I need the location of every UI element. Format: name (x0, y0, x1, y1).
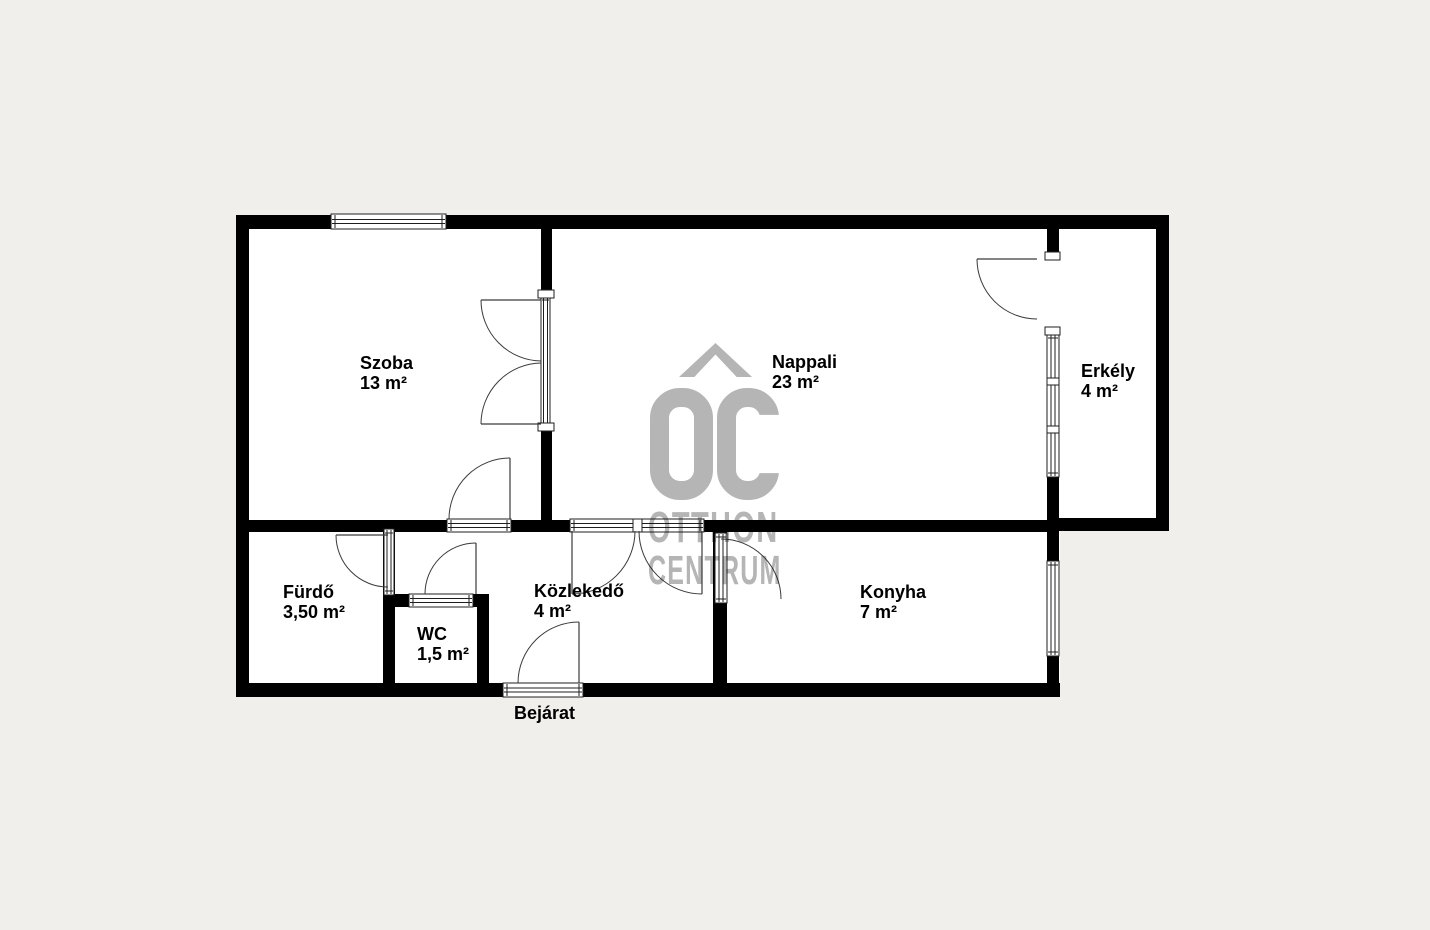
room-name: Fürdő (283, 582, 345, 602)
entrance-threshold (503, 683, 583, 697)
room-name: Konyha (860, 582, 926, 602)
room-label-erkely: Erkély 4 m² (1081, 361, 1135, 401)
door-threshold (447, 519, 511, 532)
floor-area (236, 215, 1060, 697)
glazed-door (384, 529, 394, 595)
room-name: Erkély (1081, 361, 1135, 381)
wall-cap (633, 519, 642, 532)
glazed-door (715, 533, 727, 603)
room-name: Szoba (360, 353, 413, 373)
room-label-furdo: Fürdő 3,50 m² (283, 582, 345, 622)
door-threshold (409, 594, 473, 607)
room-area: 23 m² (772, 372, 837, 392)
wall-cap (1047, 378, 1059, 385)
floor-group (236, 215, 1157, 697)
room-area: 3,50 m² (283, 602, 345, 622)
room-label-wc: WC 1,5 m² (417, 624, 469, 664)
window (331, 214, 446, 229)
room-area: 1,5 m² (417, 644, 469, 664)
wall-cap (1047, 426, 1059, 433)
room-label-konyha: Konyha 7 m² (860, 582, 926, 622)
wall-cap (538, 290, 554, 298)
room-label-kozlekedo: Közlekedő 4 m² (534, 581, 624, 621)
floor-plan-page: OTTHON CENTRUM Szoba 13 m² Nappali 23 m²… (0, 0, 1430, 930)
wall (477, 594, 489, 683)
room-area: 4 m² (1081, 381, 1135, 401)
floor-plan-drawing (0, 0, 1430, 930)
room-name: WC (417, 624, 469, 644)
room-area: 4 m² (534, 601, 624, 621)
wall (236, 683, 1060, 697)
wall (1047, 215, 1059, 256)
wall (236, 215, 249, 697)
window (1047, 561, 1059, 656)
wall-cap (1045, 252, 1060, 260)
entrance-label: Bejárat (514, 703, 575, 723)
room-area: 13 m² (360, 373, 413, 393)
wall (541, 429, 552, 520)
room-name: Közlekedő (534, 581, 624, 601)
wall-cap (1045, 327, 1060, 335)
room-name: Nappali (772, 352, 837, 372)
wall (541, 229, 552, 295)
room-area: 7 m² (860, 602, 926, 622)
room-label-szoba: Szoba 13 m² (360, 353, 413, 393)
room-label-nappali: Nappali 23 m² (772, 352, 837, 392)
wall (1047, 518, 1169, 531)
window (1047, 334, 1059, 477)
glazed-double-door (541, 296, 550, 427)
wall (1156, 215, 1169, 531)
